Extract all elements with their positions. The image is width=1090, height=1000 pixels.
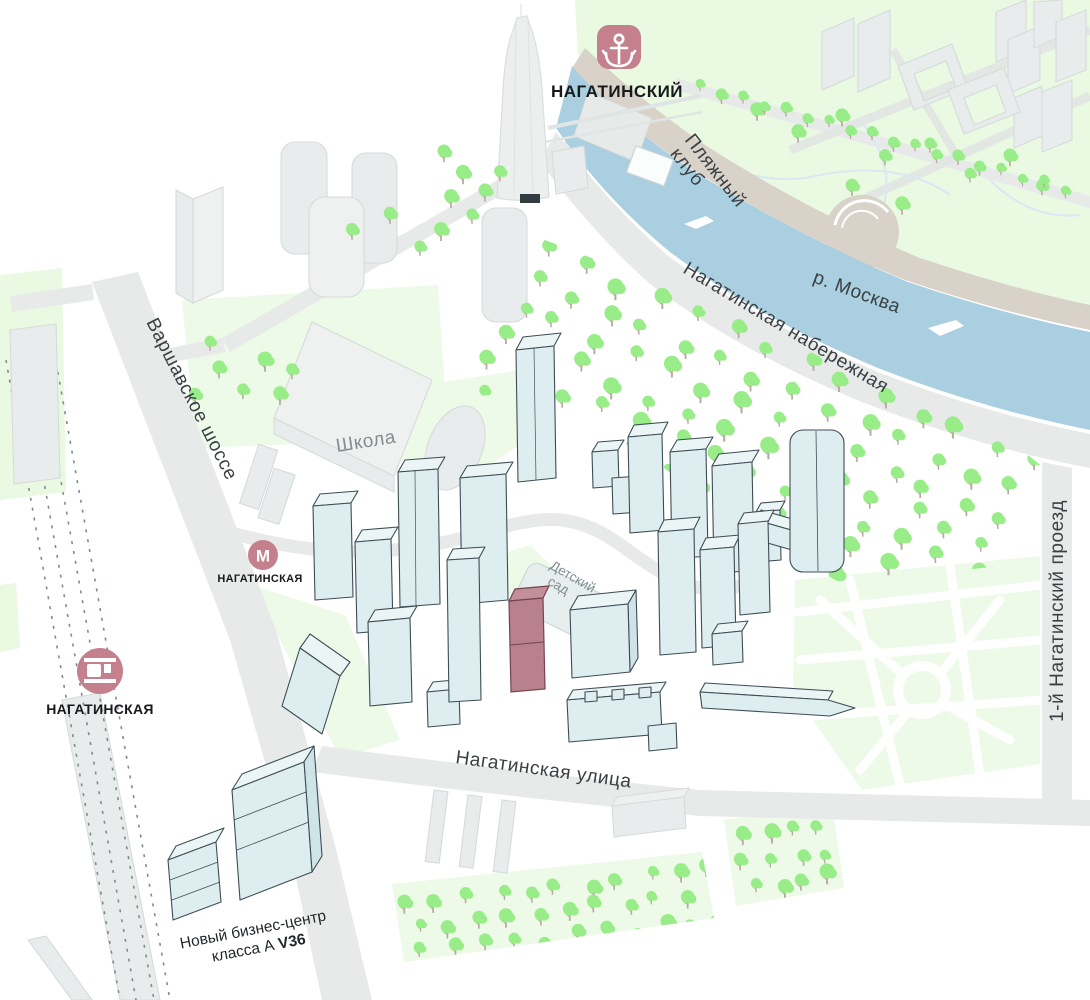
project-marker (597, 25, 641, 69)
metro-marker: М (248, 540, 278, 570)
masterplan-map: М НАГАТИНСКИЙ НАГАТИНСКАЯ НАГАТИНСКАЯ Ва… (0, 0, 1090, 1000)
business-center-line2-bold: V36 (277, 931, 308, 953)
highlighted-building[interactable] (509, 586, 549, 692)
formal-park (793, 556, 1042, 790)
metro-label: НАГАТИНСКАЯ (217, 573, 302, 585)
street-label-proezd: 1-й Нагатинский проезд (1047, 500, 1068, 722)
railway-marker (77, 648, 123, 694)
metro-icon-letter: М (256, 547, 270, 566)
business-center-buildings (168, 746, 322, 920)
project-label: НАГАТИНСКИЙ (551, 82, 683, 101)
railway-label: НАГАТИНСКАЯ (46, 701, 154, 717)
